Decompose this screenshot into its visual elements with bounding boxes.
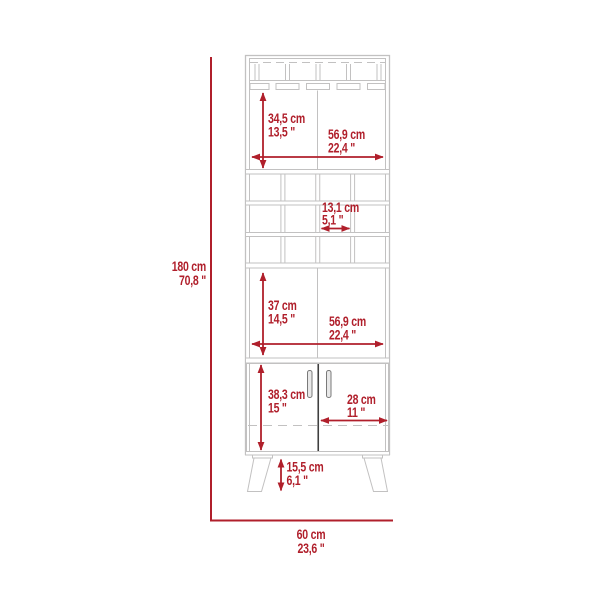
label-door-height-inch: 15 " xyxy=(268,400,287,416)
background xyxy=(0,0,600,600)
shelf-under-display xyxy=(246,170,390,175)
label-leg-height-inch: 6,1 " xyxy=(287,473,308,489)
right-door-handle xyxy=(327,371,332,398)
label-top-opening-width-inch: 22,4 " xyxy=(328,140,355,156)
wine-divider-vertical-3 xyxy=(351,174,355,263)
wine-divider-vertical-2 xyxy=(316,174,320,263)
wine-divider-horizontal-1 xyxy=(246,201,390,205)
label-top-opening-height-inch: 13,5 " xyxy=(268,124,295,140)
shelf-under-wine-rack xyxy=(246,263,390,268)
wine-divider-horizontal-2 xyxy=(246,233,390,237)
label-middle-opening-width-inch: 22,4 " xyxy=(329,327,356,343)
label-total-width-inch: 23,6 " xyxy=(298,541,325,557)
cabinet-dimension-drawing: 180 cm 70,8 " 60 cm 23,6 " 34,5 cm 13,5 … xyxy=(0,0,600,600)
cabinet-base-panel xyxy=(246,452,390,456)
label-total-height-inch: 70,8 " xyxy=(179,273,206,289)
left-door-handle xyxy=(308,371,313,398)
dimension-diagram-page: 180 cm 70,8 " 60 cm 23,6 " 34,5 cm 13,5 … xyxy=(0,0,600,600)
label-middle-opening-height-inch: 14,5 " xyxy=(268,311,295,327)
label-door-width-inch: 11 " xyxy=(347,405,365,421)
shelf-above-doors xyxy=(246,358,390,363)
wine-divider-vertical-1 xyxy=(281,174,285,263)
label-cubby-width-inch: 5,1 " xyxy=(322,212,343,228)
